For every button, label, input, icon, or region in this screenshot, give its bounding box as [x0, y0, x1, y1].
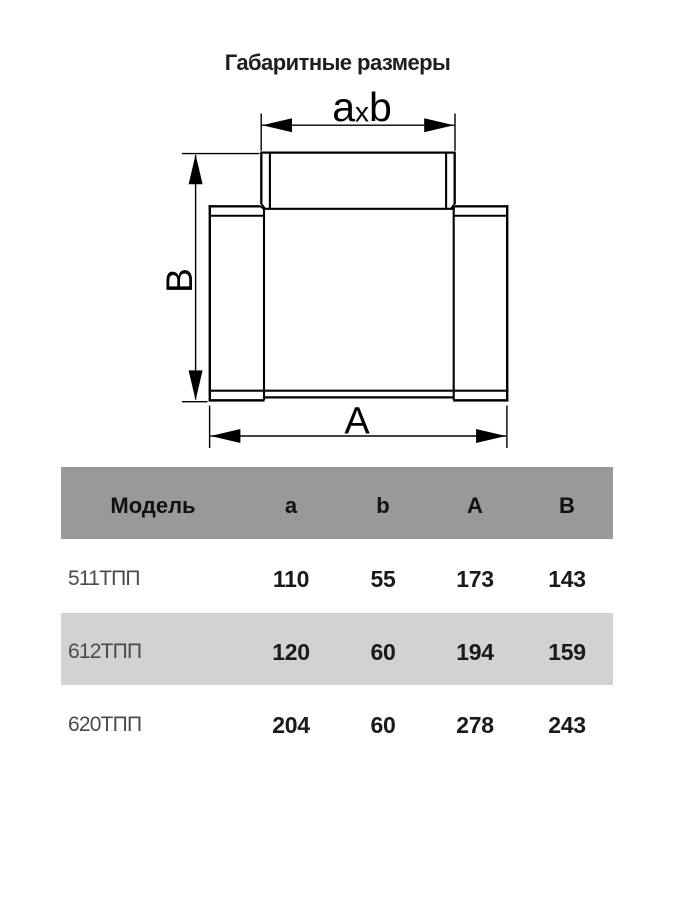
- svg-text:A: A: [344, 401, 370, 443]
- svg-text:B: B: [159, 268, 200, 293]
- svg-text:axb: axb: [332, 84, 392, 130]
